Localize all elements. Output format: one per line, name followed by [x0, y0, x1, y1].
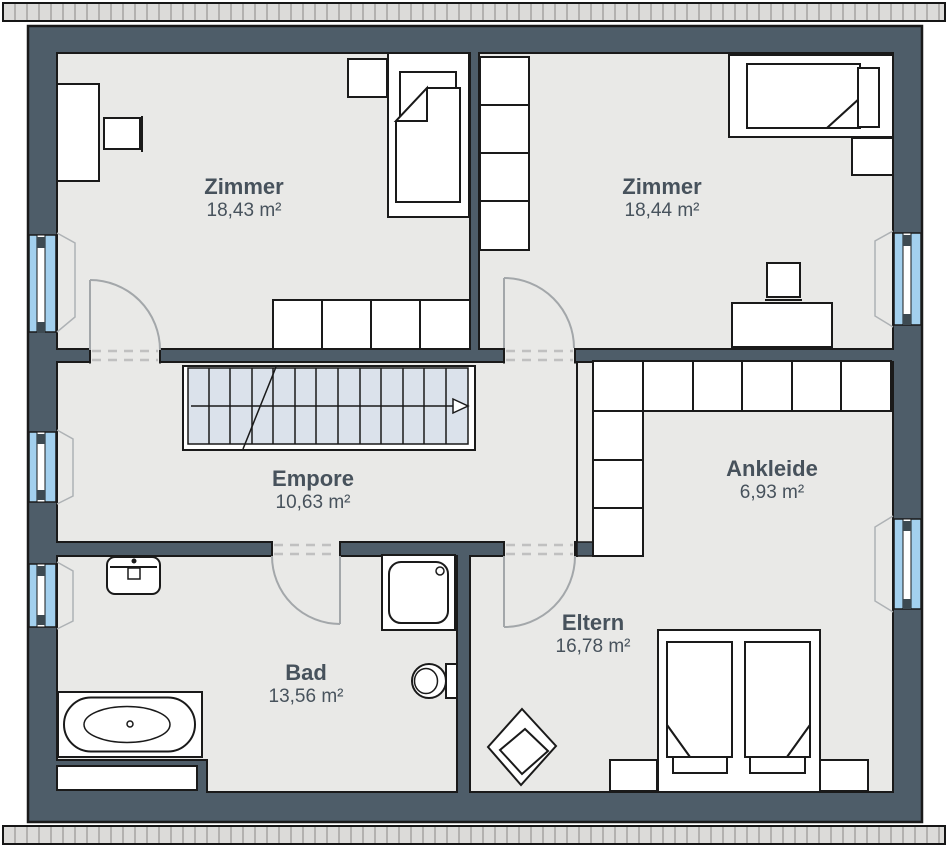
nightstand: [852, 138, 893, 175]
shelf-column: [480, 57, 529, 250]
shower: [382, 555, 455, 630]
washbasin: [107, 557, 160, 594]
nightstand-right: [820, 760, 868, 791]
chair: [767, 263, 800, 297]
wardrobe: [348, 59, 387, 97]
floor-plan: Zimmer 18,43 m² Zimmer 18,44 m² Empore 1…: [0, 0, 950, 848]
bed-single: [729, 55, 893, 137]
bed-single: [388, 53, 469, 217]
bed-double: [658, 630, 820, 792]
chair: [104, 118, 140, 149]
desk: [732, 303, 832, 347]
dresser-row: [273, 300, 470, 349]
staircase: [183, 366, 475, 450]
pillow: [858, 68, 879, 127]
nightstand-left: [610, 760, 657, 791]
toilet: [412, 664, 457, 698]
bathtub: [58, 692, 202, 757]
wardrobe-row: [593, 361, 891, 411]
knee-wall-shelf: [57, 766, 197, 790]
plan-drawing: [0, 0, 950, 848]
wardrobe-column: [593, 411, 643, 556]
desk: [57, 84, 99, 181]
